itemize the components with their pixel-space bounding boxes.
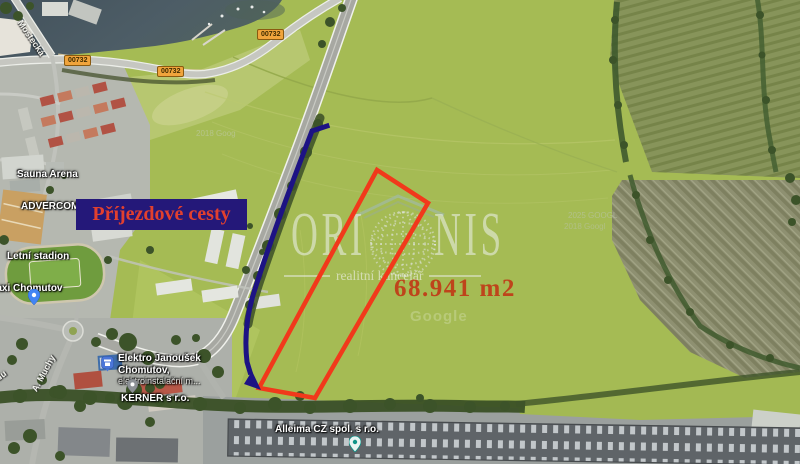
access-roads-label: Příjezdové cesty (92, 203, 230, 226)
annotated-satellite-map: 00732 00732 00732 Mostecká A. Muchy nádu… (0, 0, 800, 464)
access-roads-label-box: Příjezdové cesty (76, 199, 247, 230)
